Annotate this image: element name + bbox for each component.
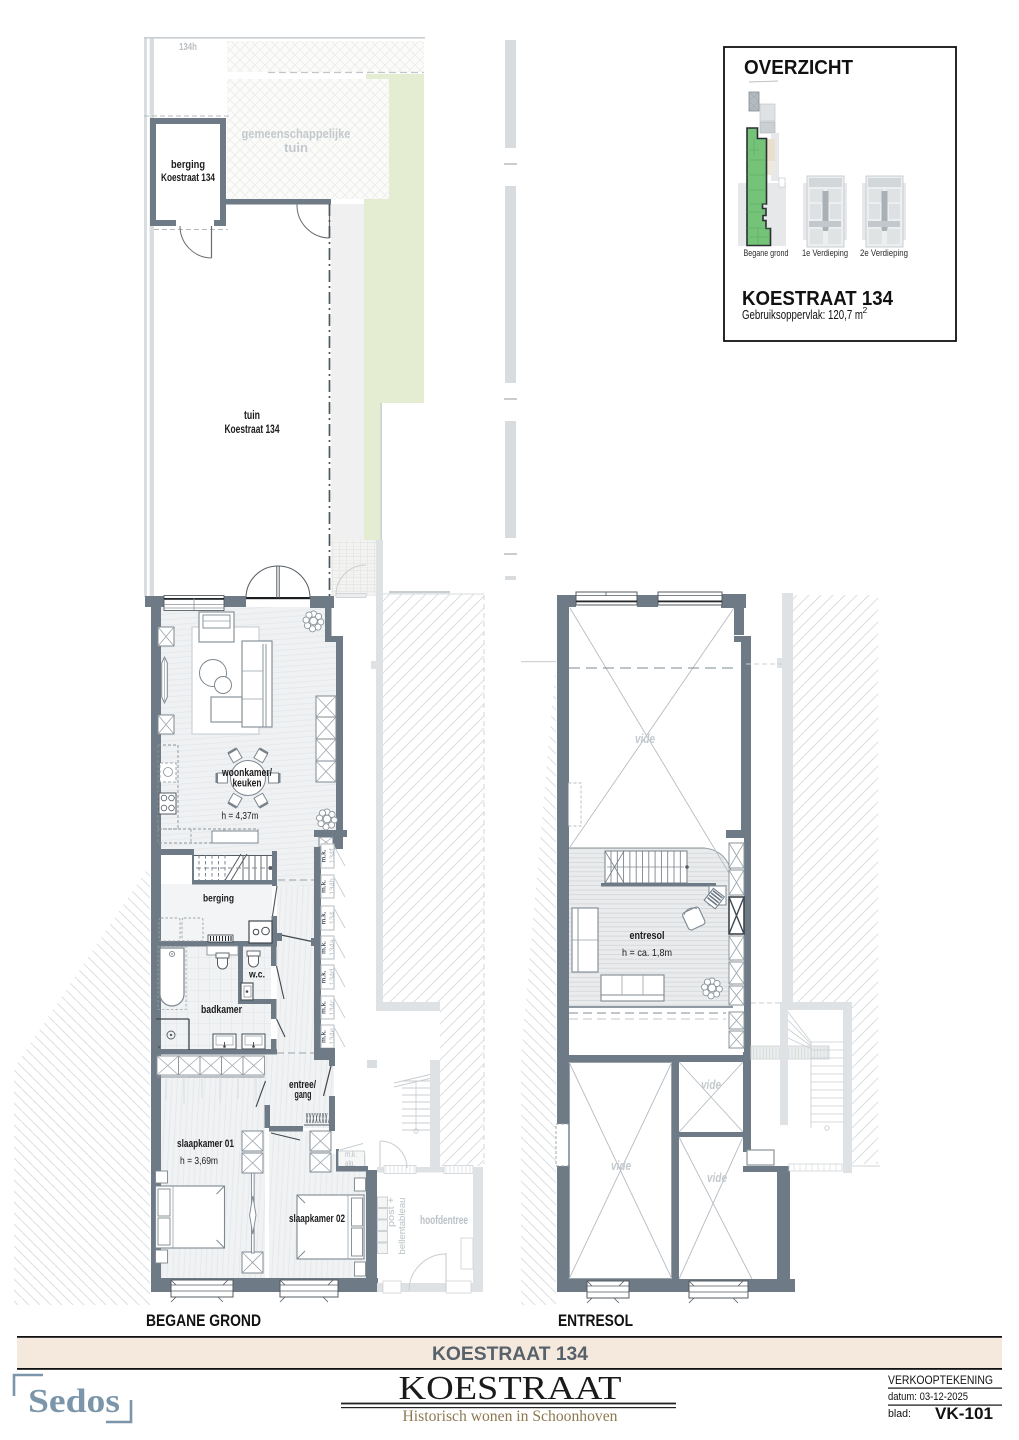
svg-text:BEGANE GROND: BEGANE GROND [146,1311,261,1330]
svg-text:VK-101: VK-101 [935,1405,993,1423]
svg-text:134: 134 [328,912,337,925]
svg-text:datum: 03-12-2025: datum: 03-12-2025 [888,1391,968,1403]
svg-text:KOESTRAAT 134: KOESTRAAT 134 [432,1344,588,1365]
svg-text:badkamer: badkamer [201,1004,243,1016]
svg-text:Koestraat 134: Koestraat 134 [161,172,216,184]
svg-text:VERKOOPTEKENING: VERKOOPTEKENING [888,1373,993,1387]
svg-text:w.c.: w.c. [248,970,265,981]
svg-text:2: 2 [863,305,868,315]
svg-text:vide: vide [701,1077,721,1092]
svg-text:1e Verdieping: 1e Verdieping [802,248,848,259]
svg-text:Koestraat 134: Koestraat 134 [225,424,280,436]
svg-text:134h: 134h [328,878,337,895]
svg-text:Begane grond: Begane grond [744,248,789,259]
svg-text:entresol: entresol [630,930,665,942]
svg-text:m.k.: m.k. [321,970,328,983]
svg-text:gemeenschappelijke: gemeenschappelijke [242,126,351,141]
svg-text:berging: berging [171,159,205,171]
svg-text:tuin: tuin [284,140,308,155]
svg-text:slaapkamer 01: slaapkamer 01 [177,1138,234,1150]
svg-text:m.k.: m.k. [321,1030,328,1043]
svg-text:berging: berging [203,893,234,905]
svg-text:bellentableau: bellentableau [397,1198,407,1255]
svg-text:134d: 134d [328,969,337,986]
svg-text:h = 4,37m: h = 4,37m [222,810,259,822]
svg-text:ENTRESOL: ENTRESOL [558,1311,633,1330]
svg-text:m.k.: m.k. [321,941,328,954]
svg-text:Historisch wonen in Schoonhove: Historisch wonen in Schoonhoven [403,1408,618,1425]
svg-text:m.k.: m.k. [321,911,328,924]
svg-text:134e: 134e [328,1028,337,1045]
svg-text:2e Verdieping: 2e Verdieping [860,248,908,259]
svg-text:vide: vide [635,731,655,746]
svg-text:Gebruiksoppervlak: 120,7 m: Gebruiksoppervlak: 120,7 m [742,308,863,322]
svg-text:m.k.: m.k. [321,880,328,893]
svg-text:134f: 134f [328,848,337,864]
svg-text:vide: vide [707,1170,727,1185]
svg-text:gang: gang [295,1089,312,1101]
svg-text:h = ca. 1,8m: h = ca. 1,8m [622,947,672,959]
svg-text:blad:: blad: [888,1408,911,1420]
svg-text:slaapkamer 02: slaapkamer 02 [289,1213,345,1225]
svg-text:KOESTRAAT 134: KOESTRAAT 134 [742,288,894,310]
svg-text:h = 3,69m: h = 3,69m [180,1155,218,1167]
svg-text:m.k.: m.k. [321,1001,328,1014]
svg-text:vide: vide [611,1158,631,1173]
svg-text:post +: post + [386,1197,396,1227]
svg-text:tuin: tuin [244,410,260,422]
svg-text:134a: 134a [328,938,337,956]
svg-text:KOESTRAAT: KOESTRAAT [399,1370,622,1407]
svg-text:134h: 134h [179,41,197,53]
svg-text:134c: 134c [328,999,337,1016]
svg-text:keuken: keuken [233,778,262,790]
svg-text:OVERZICHT: OVERZICHT [744,57,853,79]
svg-text:hoofdentree: hoofdentree [420,1213,468,1227]
svg-text:m.k.: m.k. [321,849,328,862]
svg-text:Sedos: Sedos [28,1383,120,1420]
